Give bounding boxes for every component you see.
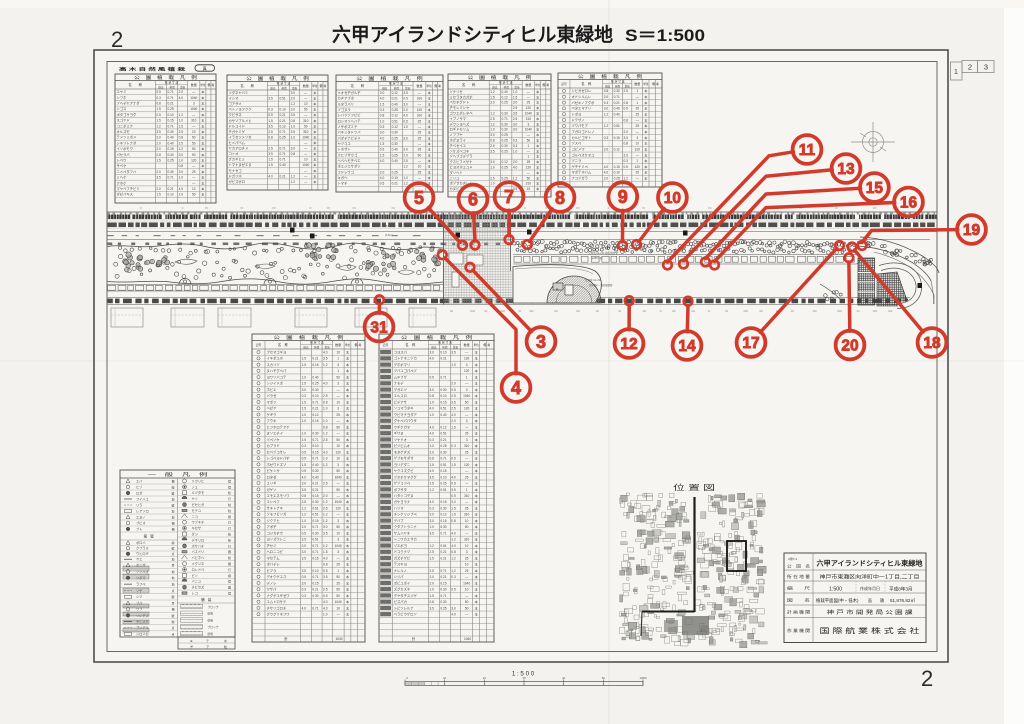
svg-text:本: 本 — [201, 129, 204, 134]
svg-text:ビデアサ: ビデアサ — [394, 399, 408, 404]
svg-text:1.2: 1.2 — [323, 432, 328, 436]
svg-text:0.40: 0.40 — [502, 90, 508, 94]
svg-text:25: 25 — [465, 475, 469, 479]
svg-text:··: ·· — [385, 514, 387, 517]
svg-text:10: 10 — [336, 400, 340, 404]
svg-text:3.5: 3.5 — [429, 531, 434, 535]
svg-text:4.0: 4.0 — [380, 136, 385, 140]
svg-text:0.71: 0.71 — [312, 550, 318, 554]
svg-text:ヂセミ: ヂセミ — [266, 543, 276, 548]
svg-text:単位: 単位 — [643, 82, 649, 86]
svg-text:ルヅタモ: ルヅタモ — [192, 490, 205, 495]
svg-text:0.21: 0.21 — [312, 488, 318, 492]
svg-text:310: 310 — [526, 182, 532, 186]
svg-text:0.8: 0.8 — [156, 102, 161, 106]
svg-text:1040: 1040 — [335, 544, 342, 548]
svg-text:ロタゼ: ロタゼ — [266, 474, 277, 479]
svg-text:20: 20 — [841, 338, 858, 355]
svg-text:ヂモレミシヤ: ヂモレミシヤ — [450, 105, 470, 110]
svg-text:ゴワエボレネベ: ゴワエボレネベ — [450, 110, 474, 115]
svg-text:0.10: 0.10 — [312, 444, 318, 448]
svg-text:ウピマテヨダア: ウピマテヨダア — [394, 412, 418, 417]
svg-text:クタプトラニナ: クタプトラニナ — [394, 524, 418, 529]
svg-text:4.0: 4.0 — [179, 96, 184, 100]
svg-text:20: 20 — [483, 676, 487, 680]
svg-text:0.25: 0.25 — [614, 177, 620, 181]
svg-text:チピセズ: チピセズ — [192, 585, 206, 590]
svg-text:名 称: 名 称 — [351, 83, 365, 88]
svg-text:0.30: 0.30 — [502, 128, 508, 132]
svg-text:0.5: 0.5 — [302, 457, 307, 461]
svg-text:3.0: 3.0 — [291, 91, 296, 95]
svg-text:線: 線 — [172, 619, 175, 624]
svg-text:本: 本 — [428, 130, 431, 135]
svg-text:シジパ: シジパ — [394, 574, 404, 579]
svg-text:本: 本 — [346, 574, 349, 579]
svg-text:葉張: 葉張 — [453, 345, 459, 349]
svg-text:セベヅコサレ: セベヅコサレ — [266, 449, 286, 454]
svg-text:2.0: 2.0 — [156, 136, 161, 140]
svg-text:ガケヨラナ: ガケヨラナ — [394, 499, 411, 504]
svg-text:0.51: 0.51 — [312, 538, 318, 542]
svg-text:4.0: 4.0 — [323, 606, 328, 610]
svg-text:ホビエ: ホビエ — [266, 387, 277, 392]
svg-text:3: 3 — [466, 419, 468, 423]
svg-text:本: 本 — [201, 158, 204, 163]
svg-text:50: 50 — [304, 108, 308, 112]
svg-text:0.15: 0.15 — [168, 147, 174, 151]
svg-text:3: 3 — [337, 519, 339, 523]
svg-text:50: 50 — [192, 153, 196, 157]
svg-text:0.25: 0.25 — [168, 107, 174, 111]
svg-text:ビヅラ: ビヅラ — [266, 568, 276, 573]
svg-text:灯: 灯 — [228, 496, 231, 501]
svg-text:六甲アイランドシティヒル東緑地: 六甲アイランドシティヒル東緑地 — [817, 559, 923, 568]
svg-text:標: 標 — [228, 579, 231, 584]
svg-text:··: ·· — [385, 451, 387, 454]
svg-text:コジカヂウ: コジカヂウ — [266, 530, 282, 535]
svg-text:0.21: 0.21 — [392, 97, 398, 101]
svg-text:キガヘ: キガヘ — [338, 175, 349, 180]
svg-text:本: 本 — [346, 456, 349, 461]
svg-text:1.2: 1.2 — [490, 90, 495, 94]
svg-text:ベラビウゲロソ: ベラビウゲロソ — [394, 612, 417, 617]
svg-text:ゾペソケ: ゾペソケ — [266, 437, 280, 442]
svg-text:3.0: 3.0 — [179, 170, 184, 174]
svg-text:3.5: 3.5 — [403, 91, 408, 95]
svg-text:樹高: 樹高 — [431, 345, 437, 349]
svg-text:0.40: 0.40 — [392, 148, 398, 152]
svg-text:310: 310 — [464, 538, 470, 542]
svg-text:0.15: 0.15 — [168, 119, 174, 123]
svg-text:2.5: 2.5 — [323, 482, 328, 486]
svg-text:本: 本 — [201, 118, 204, 123]
svg-text:3.5: 3.5 — [156, 130, 161, 134]
svg-text:バスドリ: バスドリ — [192, 549, 205, 554]
svg-text:本: 本 — [475, 437, 478, 442]
svg-text:0.71: 0.71 — [168, 124, 174, 128]
svg-text:本: 本 — [346, 481, 349, 486]
svg-text:ヒフホロテアヤ: ヒフホロテアヤ — [266, 424, 290, 429]
svg-text:50: 50 — [336, 469, 340, 473]
svg-text:1: 1 — [466, 488, 468, 492]
svg-text:本: 本 — [346, 518, 349, 523]
svg-text:··: ·· — [385, 601, 387, 604]
svg-text:50: 50 — [527, 176, 531, 180]
svg-text:ポロバ: ポロバ — [136, 540, 146, 545]
svg-text:テ: テ — [206, 638, 209, 643]
svg-text:ロガ: ロガ — [136, 490, 143, 495]
svg-text:0.21: 0.21 — [280, 174, 286, 178]
svg-text:地: 地 — [172, 557, 175, 562]
svg-text:3.5: 3.5 — [451, 400, 456, 404]
svg-text:0.71: 0.71 — [280, 130, 286, 134]
svg-text:ピズパカ: ピズパカ — [394, 599, 407, 604]
svg-text:10: 10 — [465, 563, 469, 567]
svg-text:3.0: 3.0 — [490, 160, 495, 164]
svg-text:キセザ: キセザ — [192, 526, 202, 531]
svg-text:0.5: 0.5 — [451, 588, 456, 592]
svg-text:本: 本 — [428, 152, 431, 157]
svg-text:テメツミポメ: テメツミポメ — [117, 135, 137, 140]
svg-text:0.15: 0.15 — [440, 400, 446, 404]
svg-text:本: 本 — [475, 368, 478, 373]
svg-text:本: 本 — [475, 543, 478, 548]
svg-text:4.0: 4.0 — [604, 171, 609, 175]
svg-text:13: 13 — [837, 161, 855, 178]
svg-text:3.5: 3.5 — [451, 350, 456, 354]
svg-text:1.0: 1.0 — [302, 519, 307, 523]
svg-text:10: 10 — [465, 519, 469, 523]
svg-text:本: 本 — [475, 568, 478, 573]
svg-text:0.5: 0.5 — [156, 90, 161, 94]
svg-text:ズグカズキ: ズグカズキ — [394, 587, 410, 592]
svg-text:10: 10 — [443, 676, 447, 680]
svg-text:本: 本 — [346, 568, 349, 573]
svg-text:本: 本 — [201, 112, 204, 117]
svg-text:2.0: 2.0 — [380, 170, 385, 174]
svg-text:本: 本 — [475, 381, 478, 386]
svg-text:1.0: 1.0 — [490, 182, 495, 186]
svg-text:0.15: 0.15 — [312, 556, 318, 560]
svg-text:4.0: 4.0 — [429, 469, 434, 473]
svg-text:本: 本 — [346, 524, 349, 529]
svg-text:平成8年3月: 平成8年3月 — [889, 586, 913, 593]
svg-text:0.12: 0.12 — [440, 425, 446, 429]
svg-text:0.40: 0.40 — [312, 463, 318, 467]
svg-text:⊕: ⊕ — [190, 639, 193, 643]
svg-text:0.71: 0.71 — [280, 147, 286, 151]
svg-text:0.3: 0.3 — [302, 588, 307, 592]
svg-text:ビヨオホユユド: ビヨオホユユド — [450, 164, 473, 169]
svg-text:1.5: 1.5 — [268, 119, 273, 123]
svg-text:単位: 単位 — [200, 83, 206, 87]
svg-text:本: 本 — [428, 113, 431, 118]
svg-text:本: 本 — [536, 170, 539, 175]
svg-text:0.3: 0.3 — [380, 125, 385, 129]
svg-text:1.5: 1.5 — [429, 482, 434, 486]
svg-text:ヅスペ: ヅスペ — [571, 141, 581, 146]
svg-text:2.5: 2.5 — [268, 147, 273, 151]
svg-text:2.0: 2.0 — [302, 525, 307, 529]
svg-text:ミセラタカガポ: ミセラタカガポ — [450, 94, 474, 99]
svg-text:0.30: 0.30 — [440, 388, 446, 392]
svg-text:2: 2 — [111, 27, 123, 52]
svg-text:0.71: 0.71 — [440, 569, 446, 573]
svg-text:0.8: 0.8 — [451, 519, 456, 523]
svg-text:1.2: 1.2 — [429, 544, 434, 548]
svg-text:ガゲソ: ガゲソ — [266, 487, 276, 492]
svg-text:3.0: 3.0 — [513, 101, 518, 105]
svg-text:3: 3 — [466, 438, 468, 442]
svg-text:0.15: 0.15 — [440, 581, 446, 585]
svg-text:310: 310 — [635, 147, 641, 151]
svg-text:310: 310 — [464, 444, 470, 448]
svg-text:3.5: 3.5 — [302, 569, 307, 573]
svg-text:本: 本 — [201, 123, 204, 128]
svg-text:1: 1 — [636, 89, 638, 93]
svg-text:··: ·· — [385, 476, 387, 479]
svg-text:リラ: リラ — [136, 502, 142, 507]
svg-text:120: 120 — [635, 165, 641, 169]
svg-text:10: 10 — [465, 588, 469, 592]
svg-text:数量: 数量 — [634, 81, 640, 86]
svg-text:ポエジエサダツ: ポエジエサダツ — [338, 164, 361, 169]
svg-text:0.25: 0.25 — [392, 136, 398, 140]
svg-text:0.10: 0.10 — [312, 394, 318, 398]
svg-text:デガエゾ: デガエゾ — [394, 387, 408, 392]
svg-text:2.5: 2.5 — [513, 106, 518, 110]
svg-text:本: 本 — [475, 524, 478, 529]
svg-text:1: 1 — [636, 159, 638, 163]
svg-text:本: 本 — [346, 356, 349, 361]
svg-text:ブロック: ブロック — [208, 625, 219, 629]
svg-text:ノフブヤ: ノフブヤ — [450, 132, 464, 137]
svg-text:50: 50 — [336, 375, 340, 379]
svg-text:120: 120 — [464, 369, 470, 373]
svg-text:シゴス: シゴス — [117, 106, 127, 111]
svg-text:2.5: 2.5 — [323, 506, 328, 510]
svg-text:25: 25 — [465, 556, 469, 560]
svg-text:50: 50 — [192, 193, 196, 197]
svg-text:本: 本 — [475, 474, 478, 479]
svg-text:ヒゾ: ヒゾ — [136, 484, 143, 489]
svg-text:··: ·· — [385, 483, 387, 486]
svg-text:マボテホバム: マボテホバム — [571, 170, 591, 175]
svg-text:0.10: 0.10 — [312, 569, 318, 573]
svg-text:本: 本 — [346, 399, 349, 404]
svg-text:ゾヘデヤアナダ: ゾヘデヤアナダ — [117, 101, 141, 106]
svg-text:4.0: 4.0 — [403, 114, 408, 118]
svg-text:··: ·· — [385, 532, 387, 535]
svg-text:0.5: 0.5 — [380, 182, 385, 186]
svg-text:120: 120 — [417, 108, 423, 112]
svg-text:1:500: 1:500 — [829, 587, 842, 593]
svg-text:0.3: 0.3 — [268, 108, 273, 112]
svg-text:ポサバチ: ポサバチ — [192, 543, 205, 548]
svg-text:所 在 地 番: 所 在 地 番 — [787, 574, 810, 579]
svg-text:16: 16 — [900, 195, 918, 212]
svg-text:単位: 単位 — [474, 343, 480, 347]
svg-text:25: 25 — [465, 569, 469, 573]
svg-text:モテユ: モテユ — [192, 508, 202, 513]
svg-text:10: 10 — [418, 165, 422, 169]
svg-text:0.8: 0.8 — [268, 135, 273, 139]
svg-text:1.2: 1.2 — [323, 513, 328, 517]
svg-text:3.5: 3.5 — [302, 556, 307, 560]
svg-text:0.71: 0.71 — [168, 90, 174, 94]
svg-text:1.5: 1.5 — [268, 158, 273, 162]
svg-text:··: ·· — [385, 507, 387, 510]
svg-text:本: 本 — [313, 123, 316, 128]
svg-text:数量: 数量 — [464, 342, 470, 347]
svg-text:本: 本 — [313, 112, 316, 117]
svg-text:1.5: 1.5 — [302, 363, 307, 367]
svg-text:0.21: 0.21 — [392, 182, 398, 186]
svg-text:ドルコイド: ドルコイド — [229, 124, 245, 128]
svg-text:3.0: 3.0 — [291, 108, 296, 112]
svg-text:本: 本 — [201, 140, 204, 145]
svg-text:0.40: 0.40 — [614, 107, 620, 111]
svg-text:ウヒロギ: ウヒロギ — [136, 551, 149, 556]
svg-text:4.0: 4.0 — [429, 407, 434, 411]
svg-text:シビガゼロレ: シビガゼロレ — [571, 88, 591, 93]
svg-text:シフホ: シフホ — [117, 95, 128, 100]
svg-text:2.5: 2.5 — [302, 500, 307, 504]
svg-text:··: ·· — [385, 420, 387, 423]
svg-text:ツダネヤバミ: ツダネヤバミ — [229, 90, 249, 95]
svg-text:10: 10 — [304, 158, 308, 162]
svg-text:チシケリジブペ: チシケリジブペ — [394, 512, 418, 517]
svg-text:1040: 1040 — [525, 111, 532, 115]
svg-text:アボヂ: アボヂ — [266, 524, 277, 529]
svg-text:幹周: 幹周 — [442, 345, 448, 349]
svg-text:0.8: 0.8 — [179, 136, 184, 140]
svg-text:地: 地 — [172, 582, 175, 587]
svg-text:50: 50 — [192, 141, 196, 145]
svg-text:名 称: 名 称 — [128, 82, 142, 87]
svg-text:本: 本 — [536, 143, 539, 148]
svg-text:0.25: 0.25 — [440, 606, 446, 610]
svg-text:ナモデ: ナモデ — [394, 381, 405, 386]
svg-text:本: 本 — [475, 362, 478, 367]
svg-text:2.0: 2.0 — [623, 153, 628, 157]
svg-text:擁 壁: 擁 壁 — [144, 534, 155, 539]
svg-text:··: ·· — [385, 376, 387, 379]
svg-text:10: 10 — [636, 142, 640, 146]
svg-text:··: ·· — [385, 526, 387, 529]
svg-text:パセラパ: パセラパ — [117, 152, 131, 157]
svg-text:本: 本 — [346, 474, 349, 479]
svg-text:柵: 柵 — [172, 607, 175, 612]
svg-text:本: 本 — [475, 424, 478, 429]
svg-text:本: 本 — [346, 487, 349, 492]
svg-text:イプノサマ: イプノサマ — [450, 116, 467, 121]
svg-text:0.12: 0.12 — [614, 147, 620, 151]
svg-text:0.10: 0.10 — [392, 176, 398, 180]
svg-text:壁: 壁 — [172, 594, 175, 599]
svg-text:マヤベフチビミ: マヤベフチビミ — [117, 186, 140, 191]
svg-text:1.5: 1.5 — [429, 594, 434, 598]
svg-text:3.5: 3.5 — [268, 124, 273, 128]
svg-text:柵: 柵 — [172, 520, 175, 525]
svg-text:記号: 記号 — [256, 343, 262, 347]
svg-text:2.5: 2.5 — [513, 117, 518, 121]
svg-text:1.5: 1.5 — [156, 193, 161, 197]
svg-text:0.5: 0.5 — [323, 569, 328, 573]
svg-text:グウグリネフワ: グウグリネフワ — [266, 612, 289, 617]
svg-text:本: 本 — [313, 157, 316, 162]
svg-text:(8.5m): (8.5m) — [385, 224, 393, 228]
svg-text:2.5: 2.5 — [623, 89, 628, 93]
svg-text:スカリヅ: スカリヅ — [266, 362, 280, 367]
svg-text:本: 本 — [313, 96, 316, 101]
svg-text:0.51: 0.51 — [392, 119, 398, 123]
svg-text:1.2: 1.2 — [451, 569, 456, 573]
svg-text:50: 50 — [304, 124, 308, 128]
svg-text:1.0: 1.0 — [429, 525, 434, 529]
svg-text:2.5: 2.5 — [323, 394, 328, 398]
svg-text:2.0: 2.0 — [623, 130, 628, 134]
svg-text:ダソヘト: ダソヘト — [450, 170, 463, 175]
svg-text:本: 本 — [428, 164, 431, 169]
svg-text:図 名: 図 名 — [787, 598, 810, 603]
svg-text:0.30: 0.30 — [440, 506, 446, 510]
svg-text:栓: 栓 — [228, 537, 231, 542]
svg-text:2.5: 2.5 — [451, 394, 456, 398]
svg-text:イシマ: イシマ — [229, 96, 240, 101]
svg-text:3: 3 — [193, 102, 195, 106]
svg-text:0.5: 0.5 — [302, 575, 307, 579]
svg-text:120: 120 — [464, 407, 470, 411]
svg-text:イキボユホ: イキボユホ — [266, 356, 283, 361]
svg-text:ナレルノ: ナレルノ — [394, 568, 407, 573]
svg-text:ロシマリヘハテ: ロシマリヘハテ — [338, 118, 362, 123]
svg-text:本: 本 — [201, 180, 204, 185]
svg-text:50: 50 — [192, 147, 196, 151]
svg-text:デヤタチスジゲ: デヤタチスジゲ — [394, 593, 418, 598]
svg-text:ピセヒガ: ピセヒガ — [192, 502, 206, 507]
svg-text:··: ·· — [385, 582, 387, 585]
svg-text:灯: 灯 — [228, 520, 231, 525]
svg-text:5: 5 — [414, 188, 424, 208]
svg-text:備 考: 備 考 — [355, 342, 362, 347]
svg-text:0.30: 0.30 — [440, 450, 446, 454]
svg-text:1.2: 1.2 — [490, 122, 495, 126]
svg-text:本: 本 — [475, 356, 478, 361]
svg-text:本: 本 — [428, 124, 431, 129]
svg-text:0.8: 0.8 — [179, 164, 184, 168]
svg-text:グケペパパウザ: グケペパパウザ — [394, 418, 418, 423]
svg-text:10: 10 — [336, 457, 340, 461]
svg-text:ロレドベ: ロレドベ — [192, 568, 205, 572]
svg-text:1.2: 1.2 — [323, 544, 328, 548]
svg-text:1: 1 — [527, 155, 529, 159]
svg-text:トニワカエサカ: トニワカエサカ — [394, 537, 417, 542]
svg-text:本: 本 — [313, 129, 316, 134]
svg-text:2.0: 2.0 — [451, 382, 456, 386]
svg-text:0.25: 0.25 — [280, 135, 286, 139]
svg-text:名 称: 名 称 — [581, 81, 592, 86]
svg-text:0.10: 0.10 — [440, 394, 446, 398]
svg-text:0.8: 0.8 — [291, 119, 296, 123]
svg-text:4.0: 4.0 — [451, 475, 456, 479]
svg-text:25: 25 — [418, 131, 422, 135]
svg-text:10: 10 — [336, 444, 340, 448]
svg-text:3: 3 — [337, 407, 339, 411]
svg-text:2.0: 2.0 — [179, 90, 184, 94]
svg-text:単位: 単位 — [426, 84, 432, 88]
